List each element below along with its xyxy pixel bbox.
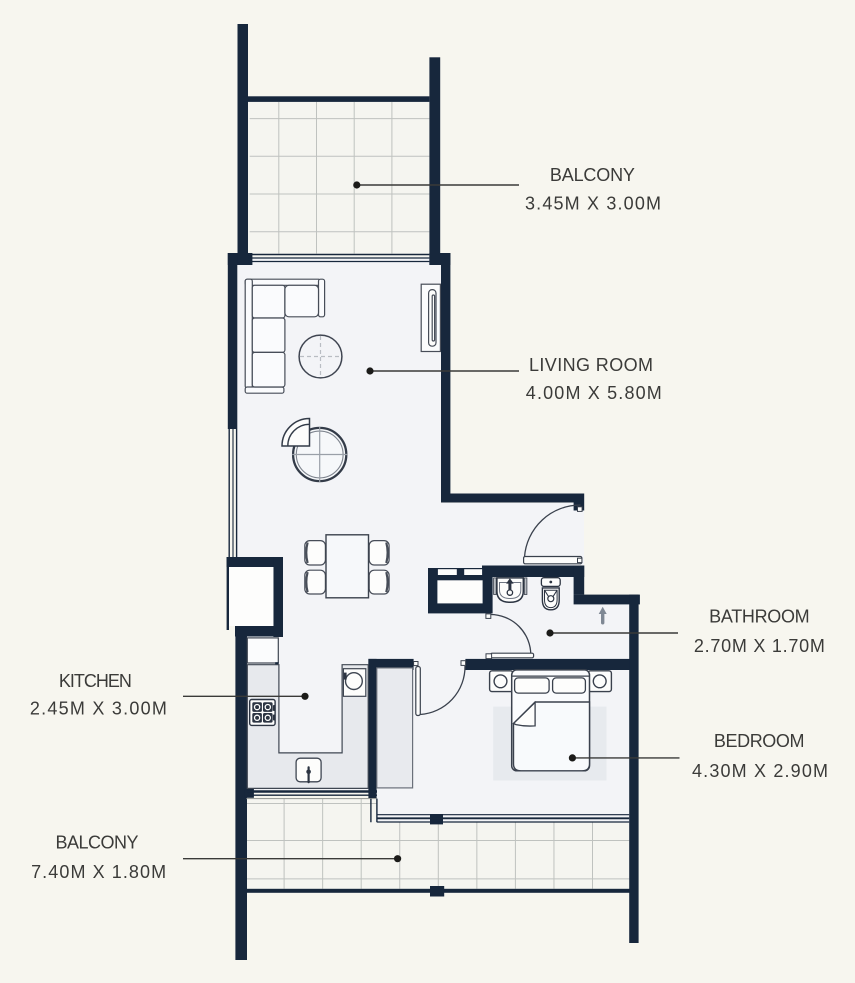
svg-text:BALCONY: BALCONY bbox=[550, 165, 635, 185]
svg-text:4.00M X 5.80M: 4.00M X 5.80M bbox=[526, 383, 662, 403]
svg-text:4.30M X 2.90M: 4.30M X 2.90M bbox=[692, 761, 828, 781]
svg-text:BEDROOM: BEDROOM bbox=[714, 731, 805, 751]
svg-text:KITCHEN: KITCHEN bbox=[59, 671, 132, 691]
svg-text:LIVING ROOM: LIVING ROOM bbox=[529, 355, 653, 375]
svg-text:2.70M X 1.70M: 2.70M X 1.70M bbox=[694, 636, 825, 656]
svg-text:3.45M X 3.00M: 3.45M X 3.00M bbox=[525, 194, 661, 214]
svg-text:BATHROOM: BATHROOM bbox=[709, 607, 810, 627]
svg-text:7.40M X 1.80M: 7.40M X 1.80M bbox=[31, 862, 166, 882]
svg-text:2.45M X 3.00M: 2.45M X 3.00M bbox=[30, 699, 167, 719]
svg-text:BALCONY: BALCONY bbox=[56, 833, 139, 853]
